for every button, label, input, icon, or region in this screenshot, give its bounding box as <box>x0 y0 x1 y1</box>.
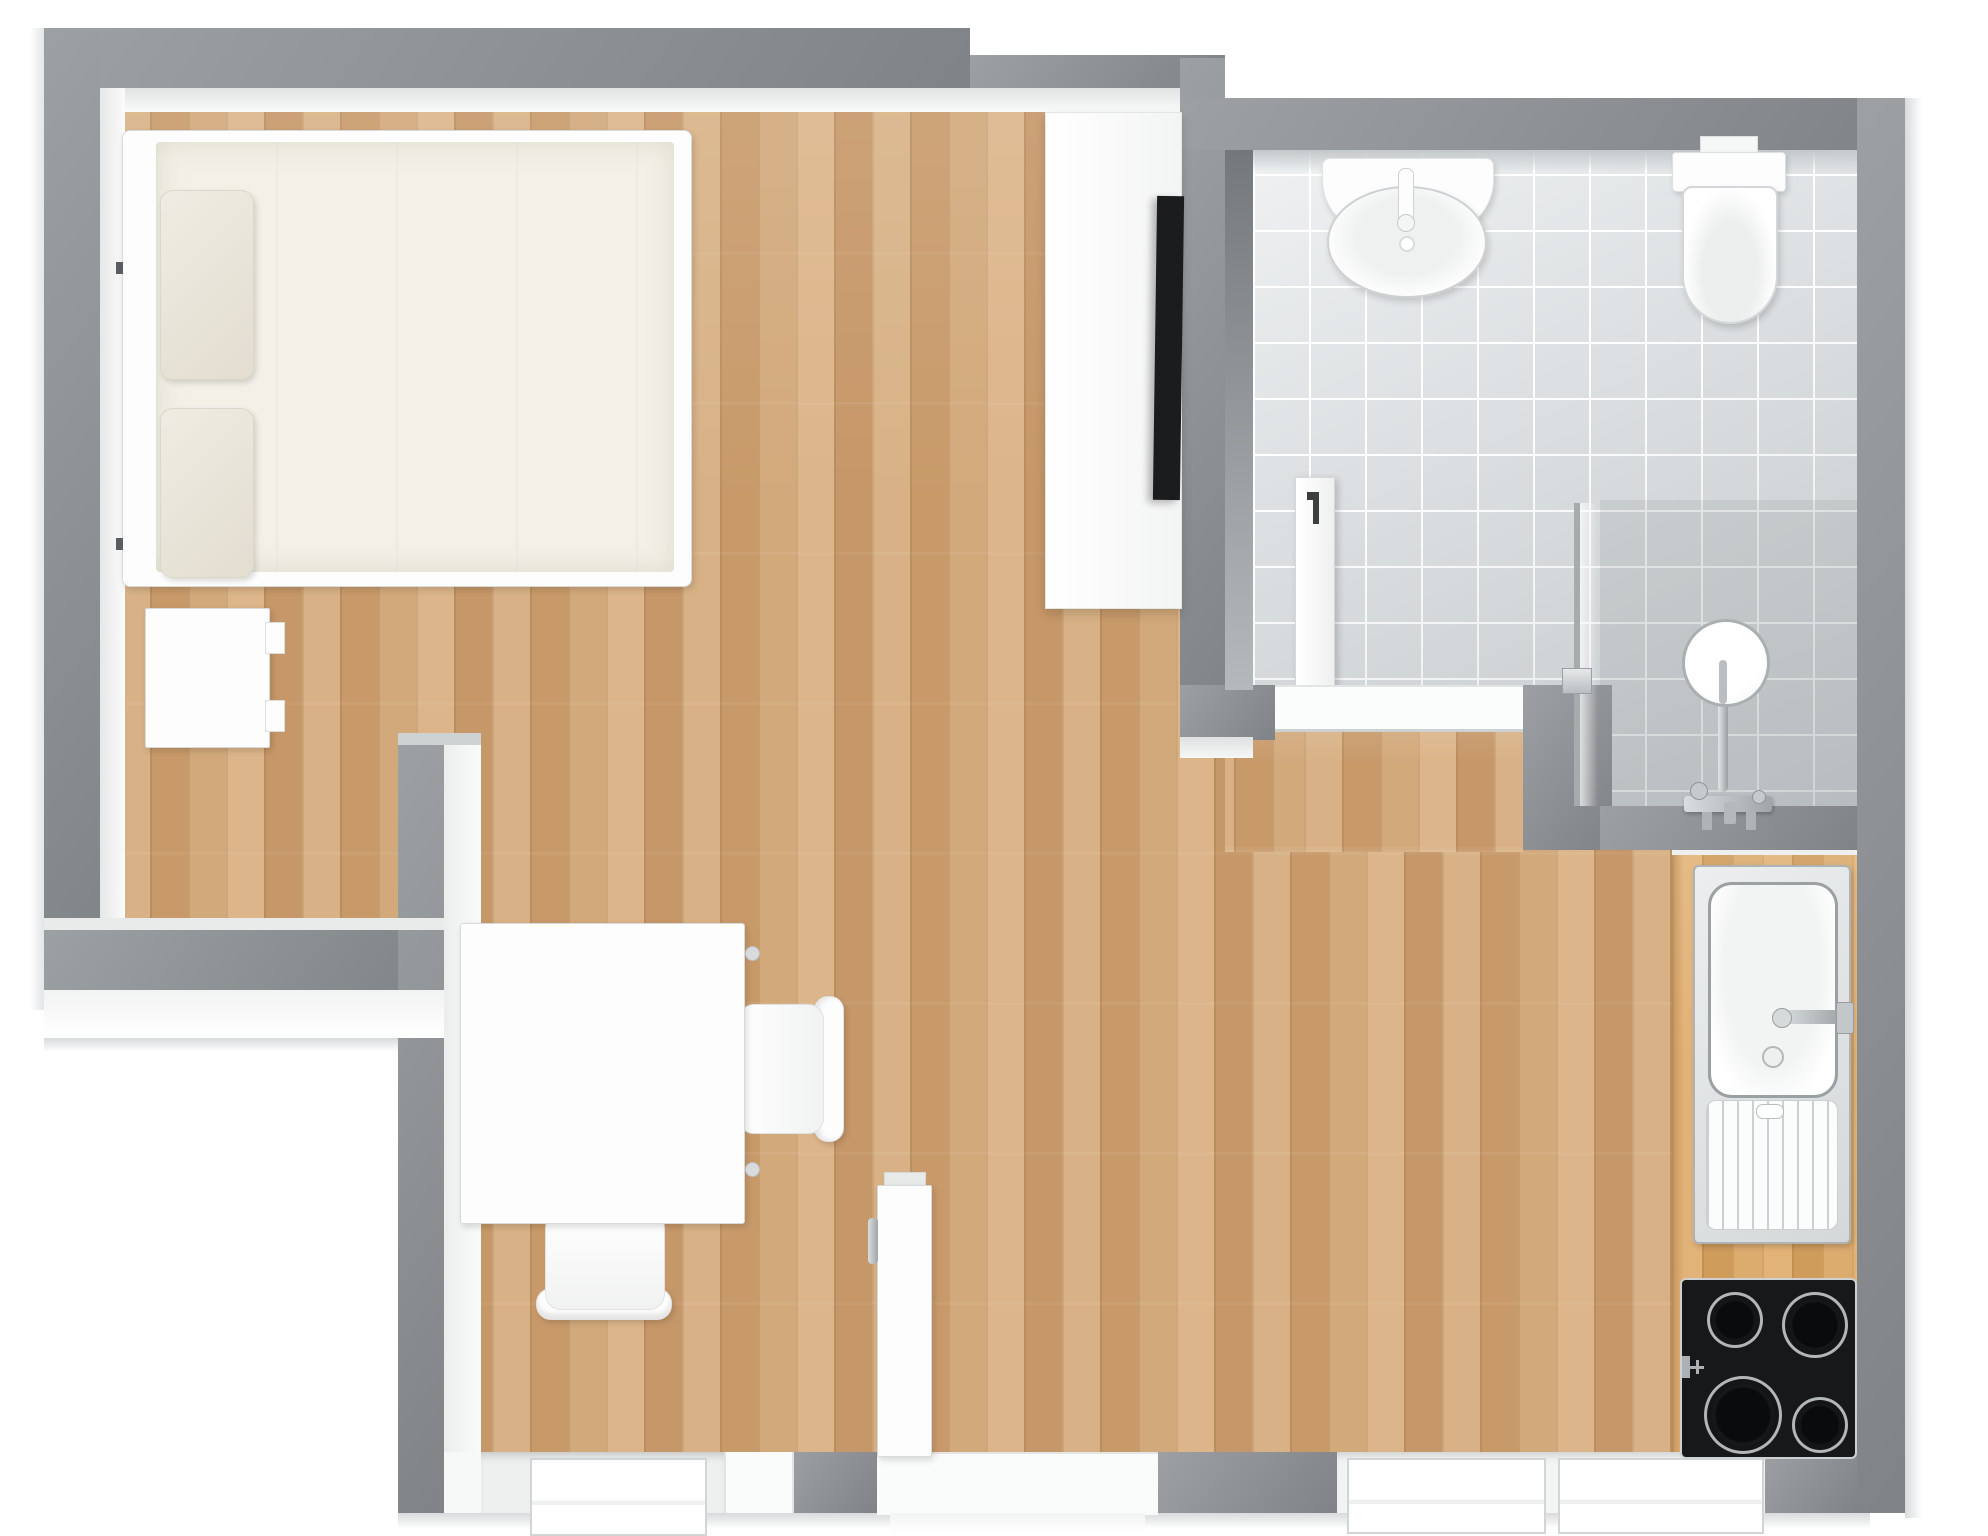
outside-bottom-left-notch <box>0 1038 398 1536</box>
table <box>460 923 745 1224</box>
wall-bathroom-door-corner <box>1180 685 1275 740</box>
window-left-pane <box>530 1458 707 1536</box>
face-bathroom-west-inner <box>1225 150 1253 690</box>
wall-bathroom-west <box>1180 58 1225 737</box>
shadow-left <box>30 28 44 1010</box>
shower-mixer-handle-left <box>1690 782 1708 800</box>
shower-head-stem <box>1719 660 1727 704</box>
face-under-bathroom-south <box>1672 850 1857 855</box>
shadow-right <box>1905 98 1922 1518</box>
cooktop-burner-top-left <box>1707 1292 1763 1348</box>
headboard-tick-1 <box>116 262 123 274</box>
window-right-pane-1 <box>1347 1458 1546 1534</box>
face-bedroom-south-top <box>44 918 444 930</box>
face-top-inner <box>125 88 1180 112</box>
wall-top-main <box>44 28 970 90</box>
wall-bottom-seg-3 <box>1765 1452 1857 1513</box>
shadow-bedroom-south <box>44 1038 444 1052</box>
cooktop-plus-v <box>1696 1360 1699 1374</box>
outside-top-right <box>1225 0 1988 98</box>
shower-glass-reflection <box>1580 503 1598 806</box>
kitchen-faucet-base <box>1836 1002 1854 1034</box>
toilet-bowl <box>1682 186 1778 324</box>
shower-mixer-spout <box>1724 802 1736 824</box>
wall-left <box>44 28 100 990</box>
bath-faucet-spout <box>1397 214 1415 232</box>
wall-bathroom-step <box>1523 685 1612 850</box>
window-left-frame <box>724 1452 794 1513</box>
entry-door-handle <box>868 1218 878 1264</box>
face-partition-endcap <box>398 733 481 745</box>
window-right-pane-2 <box>1558 1458 1764 1534</box>
wall-bottom-seg-2 <box>1158 1452 1337 1513</box>
cooktop-burner-bottom-left <box>1704 1376 1782 1454</box>
floor-patch-below-bath-door <box>1225 727 1523 852</box>
bathroom-door-handle-bar <box>1313 496 1319 524</box>
cooktop-burner-bottom-right <box>1792 1397 1848 1453</box>
entry-outer-step <box>890 1513 1145 1534</box>
chair-front-seat <box>545 1212 665 1310</box>
outside-top-step <box>970 0 1225 58</box>
kitchen-drainboard-logo <box>1756 1104 1784 1119</box>
wall-right <box>1857 98 1905 1513</box>
nightstand <box>145 608 270 748</box>
shower-mixer-handle-right <box>1752 790 1766 804</box>
face-bedroom-south <box>44 990 481 1038</box>
cooktop-burner-top-right <box>1782 1292 1848 1358</box>
nightstand-handle-2 <box>265 700 285 732</box>
entry-threshold <box>877 1452 1158 1515</box>
cooktop-control-nub <box>1682 1356 1690 1378</box>
tv <box>1153 196 1184 500</box>
wall-bottom-seg-1 <box>790 1452 877 1513</box>
entry-door <box>877 1185 932 1457</box>
pillow-bottom <box>160 408 254 578</box>
kitchen-drainboard <box>1706 1100 1838 1230</box>
table-knob-2 <box>745 1162 760 1177</box>
bathroom-threshold <box>1275 685 1523 732</box>
table-knob-1 <box>745 946 760 961</box>
wall-interior-partition <box>398 740 444 1513</box>
nightstand-handle-1 <box>265 622 285 654</box>
shower-mixer-leg-1 <box>1702 812 1712 830</box>
wall-bathroom-north <box>1180 98 1905 150</box>
kitchen-faucet-tip <box>1772 1008 1792 1028</box>
floor-plan-canvas <box>0 0 1988 1536</box>
face-bathroom-west-endcap <box>1180 737 1253 758</box>
bath-sink-drain <box>1399 236 1415 252</box>
shower-mixer-leg-2 <box>1746 812 1756 830</box>
chair-side-seat <box>738 1004 824 1134</box>
window-left-jamb <box>444 1452 481 1513</box>
kitchen-sink-drain <box>1762 1046 1784 1068</box>
wall-bedroom-south <box>44 930 444 990</box>
headboard-tick-2 <box>116 538 123 550</box>
pillow-top <box>160 190 254 380</box>
shower-glass-bracket <box>1562 668 1592 694</box>
